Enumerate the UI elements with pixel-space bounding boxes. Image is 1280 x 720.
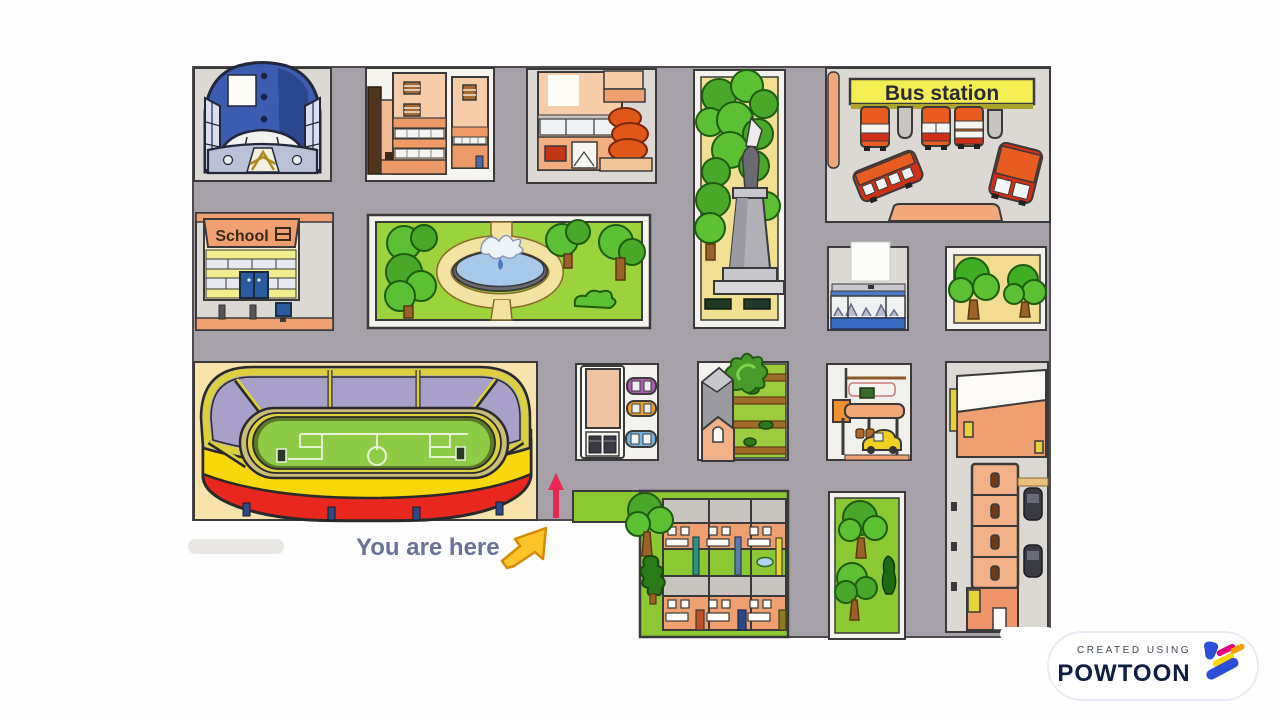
svg-text:Bus station: Bus station xyxy=(885,82,999,105)
svg-text:POWTOON: POWTOON xyxy=(1057,660,1190,687)
svg-text:You are here: You are here xyxy=(356,534,500,561)
svg-text:CREATED USING: CREATED USING xyxy=(1077,645,1191,656)
svg-text:School: School xyxy=(215,228,268,245)
